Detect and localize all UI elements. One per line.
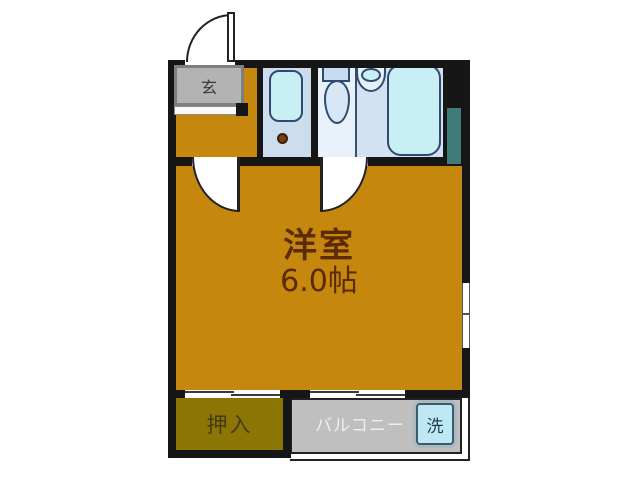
balcony-label: バルコニー bbox=[296, 407, 424, 439]
wall-mid-c bbox=[368, 157, 443, 166]
main-room-label-group: 洋室 6.0帖 bbox=[176, 228, 462, 298]
wall-left bbox=[168, 60, 176, 458]
pipe-space bbox=[447, 108, 461, 164]
entrance-area: 玄 bbox=[174, 65, 244, 106]
main-room-name: 洋室 bbox=[283, 228, 355, 265]
sliding-door-balcony bbox=[310, 390, 405, 397]
window-right-wall bbox=[462, 283, 470, 348]
wall-bottom-c bbox=[405, 390, 470, 398]
entrance-door-leaf bbox=[227, 12, 235, 62]
wall-mid-a bbox=[168, 157, 192, 166]
wall-closet-right bbox=[283, 398, 291, 458]
wall-bottom-b bbox=[280, 390, 310, 398]
sliding-door-closet bbox=[185, 390, 280, 397]
drain-icon bbox=[277, 133, 288, 144]
wall-mid-b bbox=[240, 157, 320, 166]
wall-laundry-toilet bbox=[311, 68, 318, 166]
divider-toilet-bath bbox=[355, 68, 357, 157]
entrance-door-swing bbox=[186, 14, 232, 62]
wall-closet-bottom bbox=[168, 450, 290, 458]
bathroom-sink-basin bbox=[361, 68, 381, 82]
wall-bottom-a bbox=[168, 390, 185, 398]
washing-machine-label: 洗 bbox=[427, 412, 444, 437]
laundry-pan bbox=[269, 70, 303, 122]
wall-top-right bbox=[235, 60, 470, 68]
wall-corridor-laundry bbox=[257, 68, 263, 166]
wall-right-upper bbox=[462, 166, 470, 283]
floorplan-canvas: 玄 洋室 6.0帖 押入 バルコニー 洗 bbox=[0, 0, 640, 480]
entrance-label: 玄 bbox=[201, 74, 217, 98]
washing-machine-area: 洗 bbox=[416, 403, 454, 445]
closet-label: 押入 bbox=[176, 398, 283, 450]
wall-stub bbox=[236, 103, 248, 116]
bathtub bbox=[387, 64, 441, 156]
main-room-size: 6.0帖 bbox=[280, 265, 358, 298]
